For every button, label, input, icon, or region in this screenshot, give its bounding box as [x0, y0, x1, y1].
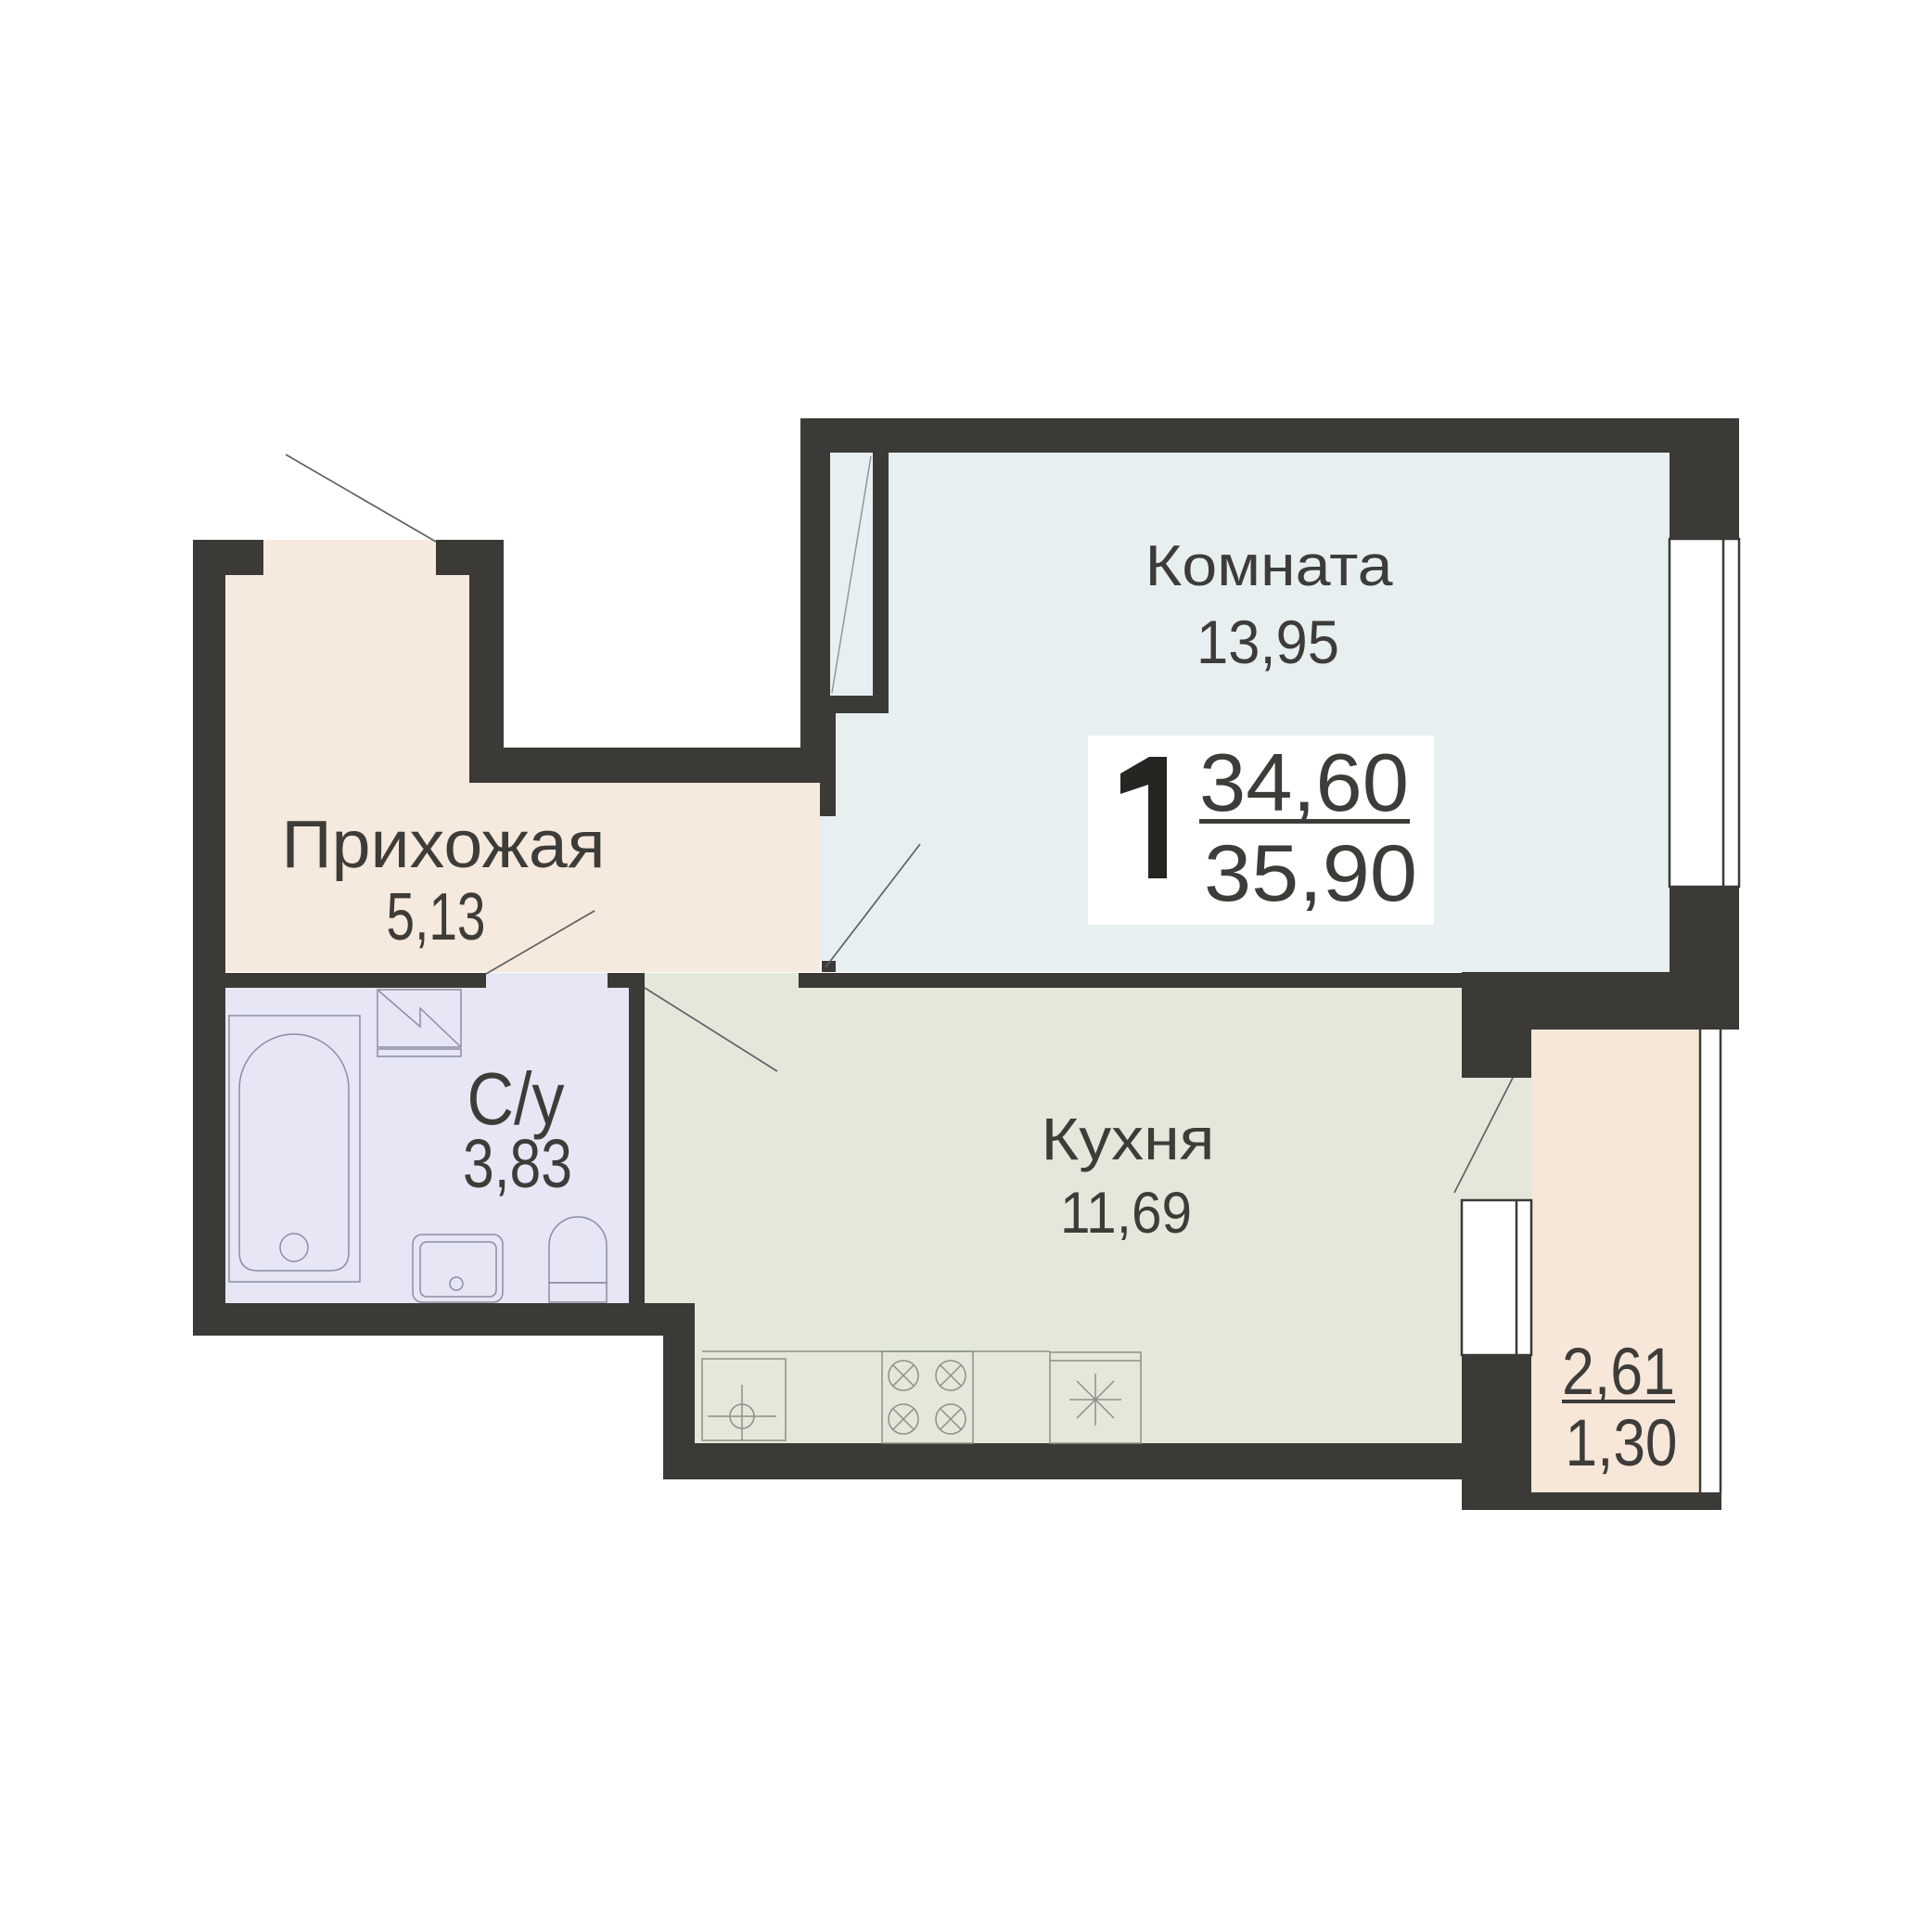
svg-text:Кухня: Кухня [1042, 1106, 1215, 1172]
svg-text:2,61: 2,61 [1562, 1336, 1675, 1409]
svg-text:11,69: 11,69 [1060, 1181, 1192, 1246]
svg-text:Комната: Комната [1145, 534, 1394, 598]
svg-text:Прихожая: Прихожая [282, 808, 606, 882]
svg-text:35,90: 35,90 [1204, 829, 1417, 918]
svg-text:5,13: 5,13 [387, 880, 486, 954]
svg-text:34,60: 34,60 [1199, 736, 1409, 828]
svg-text:1,30: 1,30 [1566, 1407, 1678, 1480]
svg-text:3,83: 3,83 [463, 1125, 572, 1202]
svg-text:13,95: 13,95 [1196, 608, 1339, 676]
